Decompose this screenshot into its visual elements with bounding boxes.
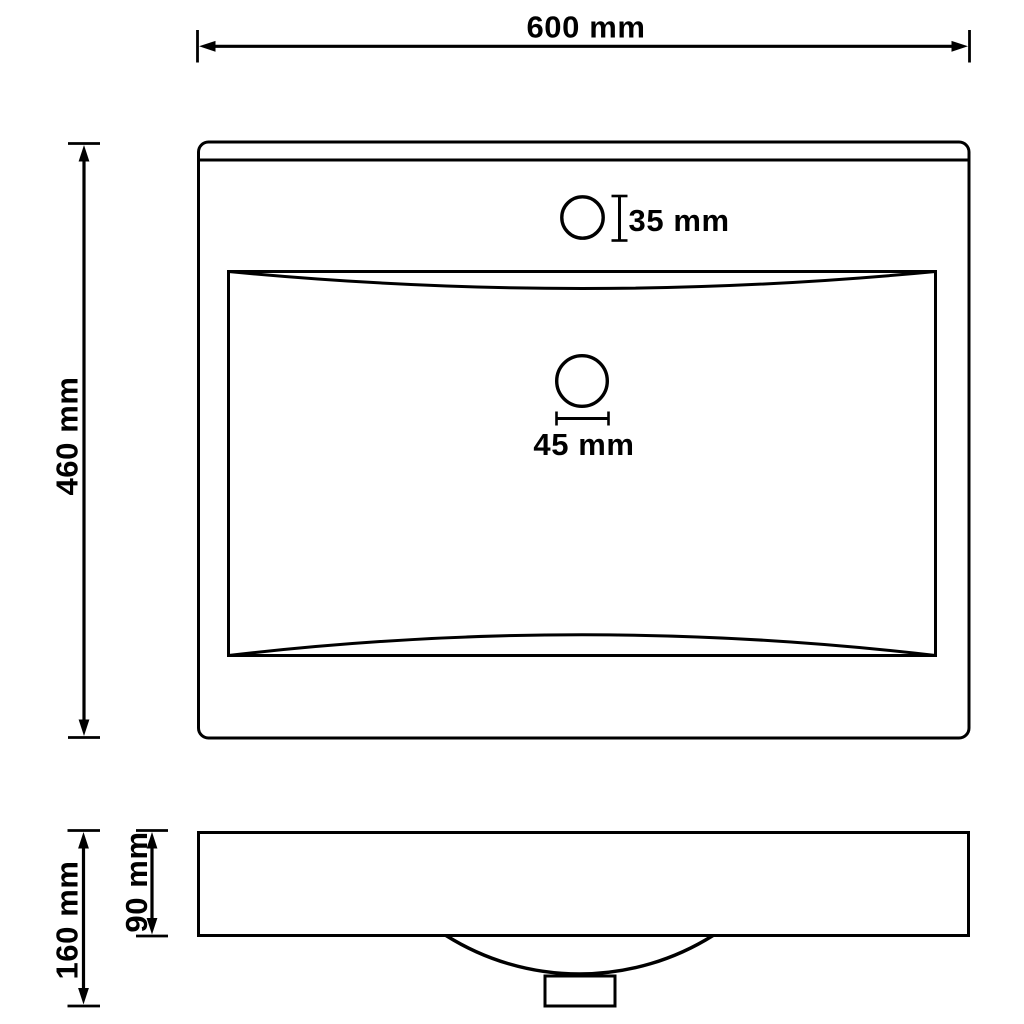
svg-text:90 mm: 90 mm: [119, 831, 154, 932]
svg-text:600 mm: 600 mm: [526, 10, 645, 45]
svg-text:35 mm: 35 mm: [629, 203, 730, 238]
svg-text:45 mm: 45 mm: [533, 427, 634, 462]
svg-text:460 mm: 460 mm: [50, 376, 85, 495]
svg-text:160 mm: 160 mm: [50, 860, 85, 979]
